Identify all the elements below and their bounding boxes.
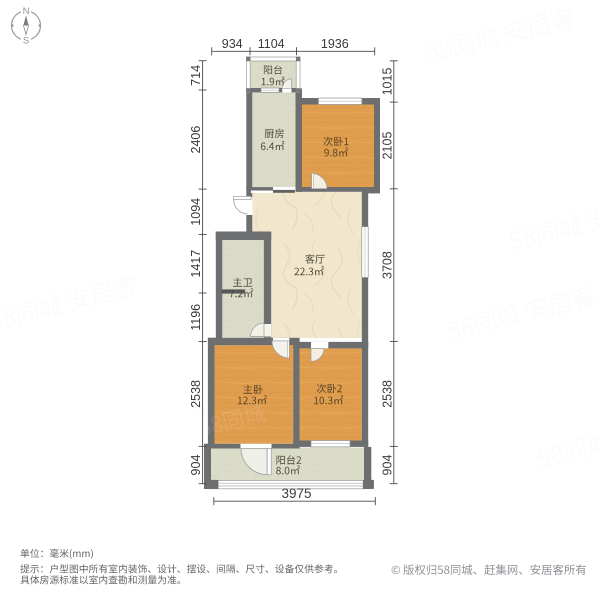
svg-text:S: S xyxy=(23,36,29,47)
svg-text:1104: 1104 xyxy=(258,37,285,51)
svg-text:714: 714 xyxy=(189,65,203,86)
svg-text:1417: 1417 xyxy=(189,250,203,278)
svg-text:3975: 3975 xyxy=(281,486,311,501)
svg-text:3708: 3708 xyxy=(381,251,395,279)
svg-text:904: 904 xyxy=(381,455,395,476)
svg-text:2105: 2105 xyxy=(381,132,395,160)
svg-text:934: 934 xyxy=(222,37,243,51)
svg-text:904: 904 xyxy=(189,455,203,476)
svg-text:1936: 1936 xyxy=(321,37,349,51)
svg-text:2406: 2406 xyxy=(189,126,203,154)
svg-text:N: N xyxy=(23,6,30,17)
svg-text:1196: 1196 xyxy=(189,304,203,331)
svg-text:1094: 1094 xyxy=(189,198,203,226)
svg-text:2538: 2538 xyxy=(381,380,395,408)
svg-text:1015: 1015 xyxy=(381,68,395,96)
svg-text:2538: 2538 xyxy=(189,380,203,408)
